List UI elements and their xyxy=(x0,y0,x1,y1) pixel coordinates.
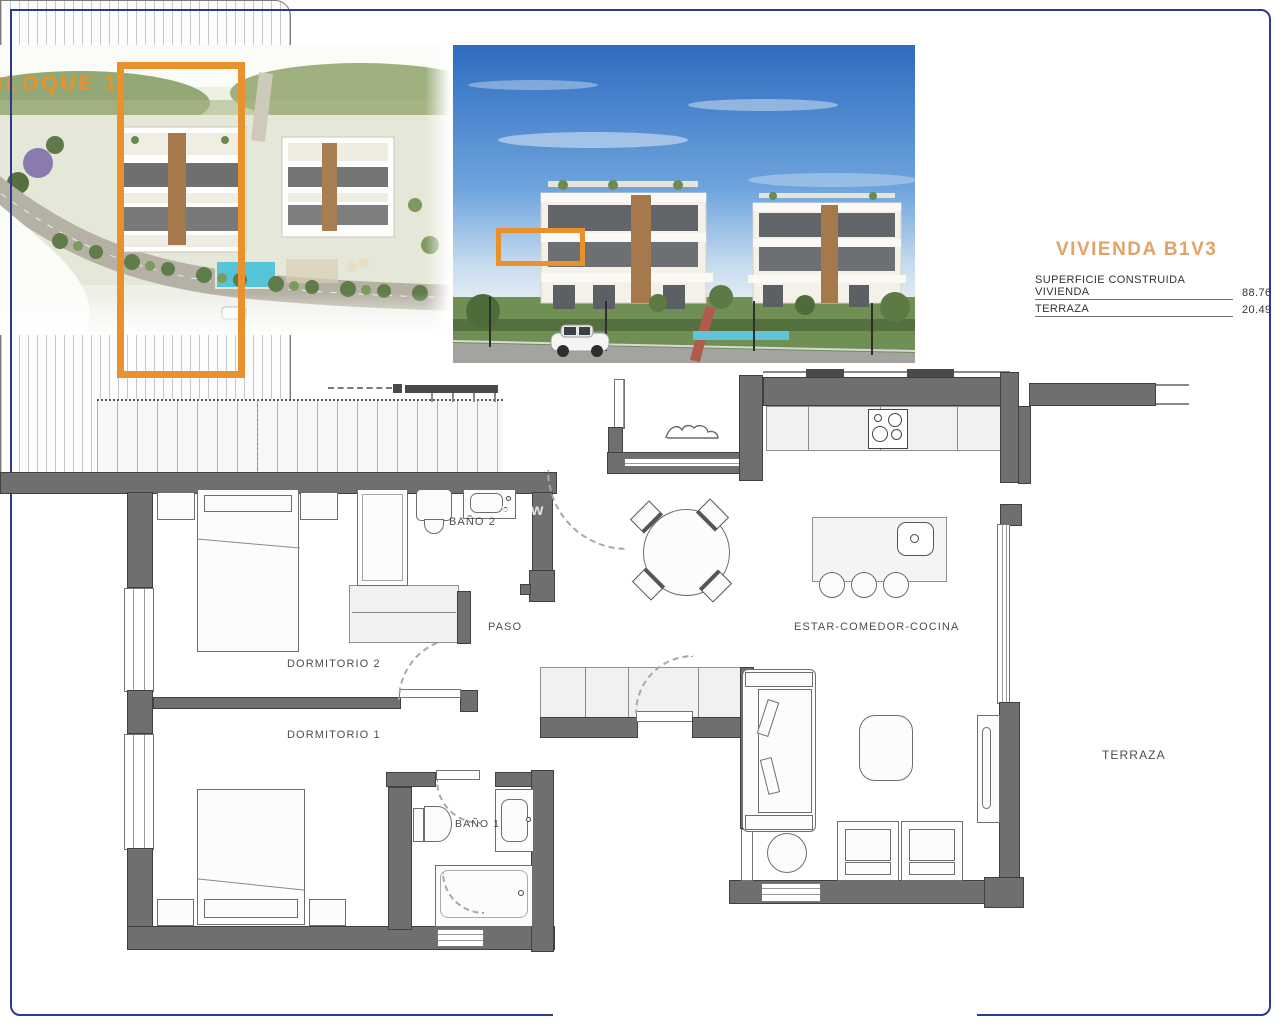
armchair-cushion xyxy=(845,862,891,875)
toilet xyxy=(416,489,452,521)
wall-bottom xyxy=(127,926,555,950)
bar-stool xyxy=(851,572,877,598)
armchair-cushion xyxy=(909,862,955,875)
vanity-basin xyxy=(470,493,503,513)
room-label-dormitorio1: DORMITORIO 1 xyxy=(287,729,381,741)
bar-stool xyxy=(883,572,909,598)
wardrobe-rail xyxy=(352,612,456,613)
watermark: www xyxy=(502,502,545,520)
bar-stool xyxy=(819,572,845,598)
dashed-detail-line xyxy=(328,387,392,389)
window-bano1 xyxy=(437,929,484,947)
upper-outline xyxy=(763,371,1010,373)
wall-bano1-top xyxy=(495,772,533,787)
wall-bano1-right xyxy=(531,770,554,952)
entry-sidelight xyxy=(614,379,625,429)
room-label-paso: PASO xyxy=(488,621,522,633)
nightstand xyxy=(157,492,195,520)
sink-drain xyxy=(910,534,919,543)
cooktop xyxy=(868,409,908,449)
armchair-seat xyxy=(845,829,891,861)
wardrobe-dormitorio2 xyxy=(349,585,459,643)
pergola-bar xyxy=(405,385,498,393)
wall-bano1-left xyxy=(388,787,412,930)
shower-inner xyxy=(362,494,403,581)
window-dormitorio2 xyxy=(124,588,154,692)
tick xyxy=(473,393,475,402)
side-table xyxy=(767,833,807,873)
wall-living-corner xyxy=(984,877,1024,908)
wall-kitchen-top xyxy=(763,377,1010,406)
sofa-armrest xyxy=(745,672,813,687)
wall-bedroom-divider xyxy=(153,697,401,709)
nightstand xyxy=(300,492,338,520)
burner xyxy=(891,429,902,440)
closet-divider xyxy=(628,668,629,718)
floorplan-page: { "overview": { "block_label": "BLOQUE 1… xyxy=(0,0,1280,1024)
nightstand xyxy=(309,899,346,926)
armchair-seat xyxy=(909,829,955,861)
entry-door-threshold xyxy=(624,458,740,467)
wall-left xyxy=(127,690,153,734)
toilet-bowl xyxy=(424,806,452,842)
counter-divider xyxy=(957,406,958,451)
burner xyxy=(888,413,902,427)
faucet-dot xyxy=(506,496,511,501)
wall-top-right-arm xyxy=(1029,383,1156,406)
door-bano1 xyxy=(436,770,480,780)
nightstand xyxy=(157,899,194,926)
wall-extension-line xyxy=(1156,403,1189,405)
faucet-dot xyxy=(526,817,531,822)
bed-pillow-band xyxy=(204,899,298,918)
coffee-table xyxy=(859,715,913,781)
wall-below-closet xyxy=(540,717,638,738)
washbasin xyxy=(501,799,528,842)
terrace-slider xyxy=(997,524,1010,704)
door-living-south xyxy=(761,883,821,902)
window-dormitorio1 xyxy=(124,734,154,850)
wall-kitchen-right xyxy=(1000,372,1019,483)
wall-bano1-top xyxy=(386,772,436,787)
wardrobe-post xyxy=(457,591,471,644)
room-label-bano2: BAÑO 2 xyxy=(449,516,496,528)
toilet-tank xyxy=(413,808,424,842)
door-post xyxy=(460,690,478,712)
room-label-terraza: TERRAZA xyxy=(1102,748,1166,762)
burner xyxy=(874,414,882,422)
tick xyxy=(452,393,454,402)
burner xyxy=(872,426,888,442)
wall-living-right xyxy=(999,702,1020,884)
bed-dormitorio2 xyxy=(197,489,299,652)
wall-left xyxy=(127,492,153,588)
room-label-bano1: BAÑO 1 xyxy=(455,818,500,830)
section-dashed-line xyxy=(257,399,258,475)
room-label-dormitorio2: DORMITORIO 2 xyxy=(287,658,381,670)
doormat-sketch xyxy=(663,421,721,443)
wall-extension-line xyxy=(1156,384,1189,386)
closet-divider xyxy=(698,668,699,718)
tick xyxy=(431,393,433,402)
wall-porch-right xyxy=(739,375,763,481)
hinge-block xyxy=(520,584,531,595)
bed-pillow-band xyxy=(204,495,292,512)
tick xyxy=(494,393,496,402)
detail-glyph xyxy=(393,384,402,393)
tv-panel xyxy=(982,727,991,809)
wall-bano2-block xyxy=(529,570,555,602)
sofa-armrest xyxy=(745,815,813,830)
terrace-corner-block xyxy=(1000,504,1022,526)
closet-divider xyxy=(585,668,586,718)
drain-dot xyxy=(518,890,524,896)
wall-kitchen-right-inner xyxy=(1018,406,1031,484)
counter-divider xyxy=(808,406,809,451)
window-living-left xyxy=(741,829,753,881)
roof-overhang-hatch xyxy=(97,399,503,475)
room-label-estar: ESTAR-COMEDOR-COCINA xyxy=(794,621,959,633)
south-exterior xyxy=(553,902,977,1024)
